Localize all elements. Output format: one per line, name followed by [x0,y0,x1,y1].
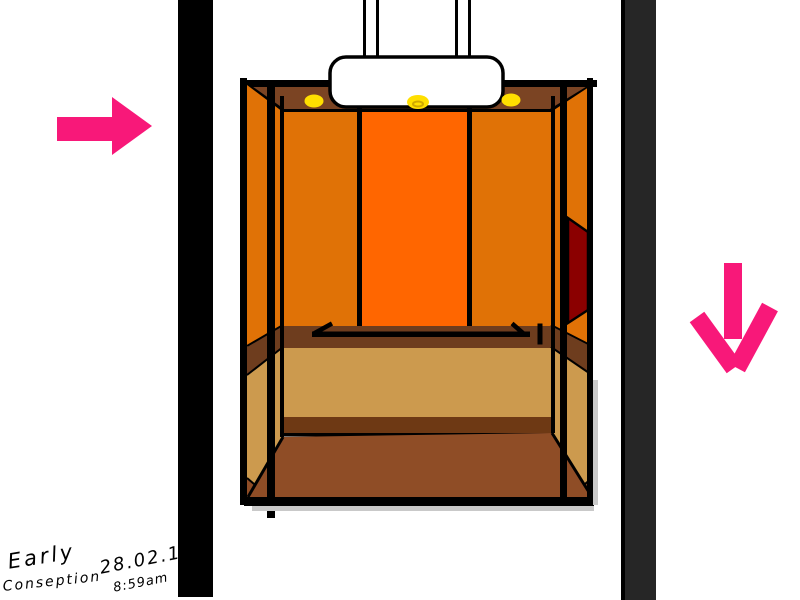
shaft-wall-left [178,0,213,597]
side-wall-left-upper [247,85,283,347]
hoist-cable-left [365,0,378,61]
control-panel [568,218,588,323]
ceiling-light-left [305,95,324,108]
back-wall-top-line [282,109,552,112]
floor-step-band [282,417,552,434]
drawing-canvas: Early Conseption 28.02.14 8:59am [0,0,800,600]
car-frame-bottom-bar [244,497,594,506]
ceiling-light-right [502,94,521,107]
corner-line-back-left [280,96,284,437]
arrow-right-icon [57,97,152,155]
car-floor [248,433,592,497]
back-wall-center-panel [362,110,467,326]
frame-pillar-front-right [560,84,567,505]
frame-outer-left [240,78,247,505]
elevator-sketch [0,0,800,600]
lower-wall-band [282,348,552,417]
corner-line-back-right [551,96,555,433]
shaft-wall-right-edge [621,0,625,600]
arrow-down-shaft [724,263,742,339]
frame-pillar-front-left [267,84,275,518]
right-frame-shadow [593,380,598,505]
handrail-end-post [538,324,543,345]
panel-divider-left [357,105,362,326]
panel-divider-right [467,105,472,326]
frame-outer-right [587,78,593,505]
arrow-down-icon [697,263,770,368]
hoist-cable-right [457,0,470,61]
shaft-wall-right [625,0,656,600]
bottom-shadow [252,506,594,511]
handrail-bar [312,332,530,338]
